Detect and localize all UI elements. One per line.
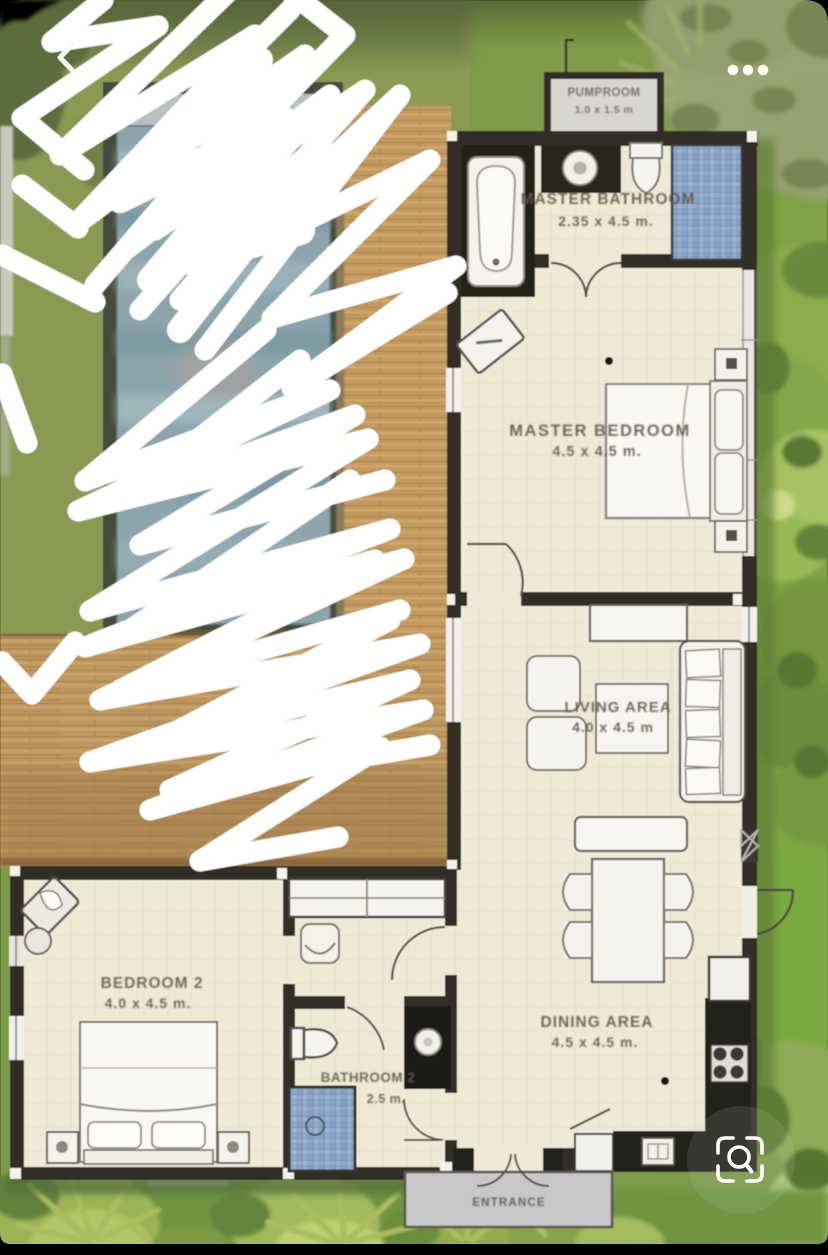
svg-text:MASTER BEDROOM: MASTER BEDROOM (509, 422, 690, 440)
svg-text:BATHROOM 2: BATHROOM 2 (321, 1070, 416, 1085)
svg-text:MASTER BATHROOM: MASTER BATHROOM (521, 191, 696, 208)
svg-text:LIVING AREA: LIVING AREA (564, 699, 671, 716)
svg-text:4.5 x 4.5 m.: 4.5 x 4.5 m. (552, 444, 641, 460)
svg-text:2.5 m.: 2.5 m. (367, 1092, 405, 1106)
svg-text:DINING AREA: DINING AREA (541, 1014, 654, 1031)
svg-text:4.5 x 4.5 m.: 4.5 x 4.5 m. (552, 1034, 639, 1050)
svg-text:4.0 x 4.5 m.: 4.0 x 4.5 m. (105, 995, 192, 1011)
svg-text:PUMPROOM: PUMPROOM (568, 87, 641, 99)
svg-text:ENTRANCE: ENTRANCE (472, 1197, 546, 1209)
svg-text:1.0 x 1.5 m: 1.0 x 1.5 m (575, 104, 634, 116)
svg-text:2.35 x 4.5 m.: 2.35 x 4.5 m. (558, 213, 654, 229)
svg-text:4.0 x 4.5 m: 4.0 x 4.5 m (572, 719, 654, 735)
svg-text:BEDROOM 2: BEDROOM 2 (101, 975, 204, 992)
